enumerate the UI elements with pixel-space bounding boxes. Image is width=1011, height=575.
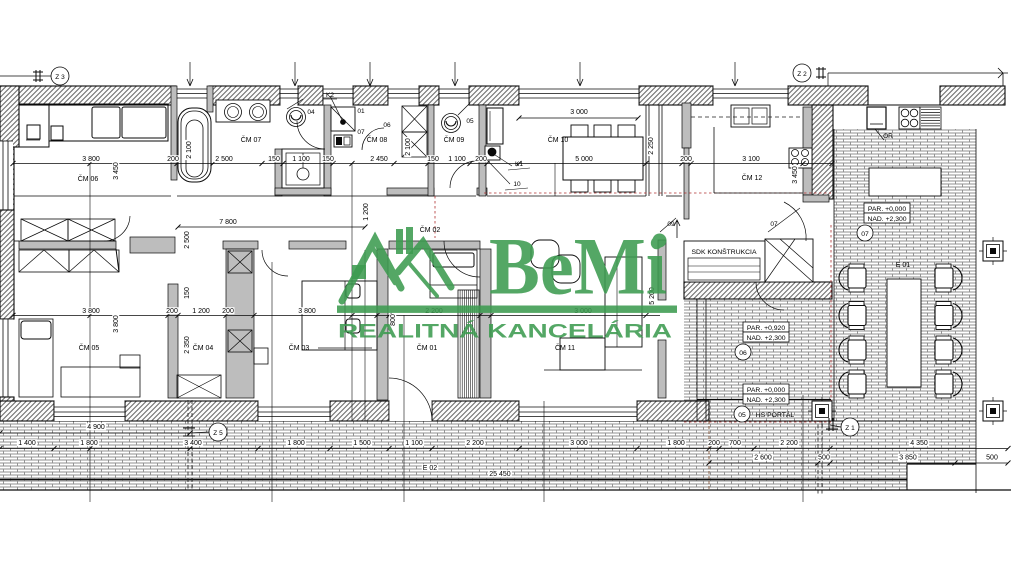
svg-text:ČM 05: ČM 05 (79, 343, 100, 352)
svg-text:500: 500 (986, 455, 998, 462)
svg-text:2 450: 2 450 (370, 156, 388, 163)
svg-text:ČM 06: ČM 06 (78, 174, 99, 183)
svg-text:ČM 01: ČM 01 (417, 343, 438, 352)
svg-text:BeMi: BeMi (489, 221, 667, 312)
svg-text:ČM 08: ČM 08 (367, 135, 388, 144)
svg-text:25 450: 25 450 (489, 471, 511, 478)
svg-text:2 100: 2 100 (405, 138, 412, 156)
svg-text:Z 3: Z 3 (55, 74, 65, 81)
svg-text:Z 1: Z 1 (845, 425, 855, 432)
svg-text:ČM 04: ČM 04 (193, 343, 214, 352)
svg-text:E 02: E 02 (423, 465, 438, 472)
svg-text:07: 07 (357, 129, 365, 136)
svg-text:K2: K2 (326, 92, 334, 99)
svg-text:05: 05 (466, 118, 474, 125)
svg-text:2 600: 2 600 (754, 455, 772, 462)
svg-text:Z 2: Z 2 (797, 71, 807, 78)
svg-text:150: 150 (268, 156, 280, 163)
svg-text:2 350: 2 350 (184, 336, 191, 354)
svg-text:1 500: 1 500 (353, 440, 371, 447)
svg-text:PAR. +0,920: PAR. +0,920 (747, 325, 785, 332)
svg-text:3 850: 3 850 (899, 455, 917, 462)
svg-text:5 000: 5 000 (575, 156, 593, 163)
svg-text:2 200: 2 200 (466, 440, 484, 447)
svg-text:1 100: 1 100 (292, 156, 310, 163)
svg-text:3 800: 3 800 (82, 156, 100, 163)
svg-text:1 800: 1 800 (80, 440, 98, 447)
svg-text:K1: K1 (515, 161, 523, 168)
svg-text:01: 01 (357, 108, 365, 115)
svg-text:3 450: 3 450 (113, 162, 120, 180)
svg-text:2 250: 2 250 (648, 137, 655, 155)
svg-text:200: 200 (680, 156, 692, 163)
svg-text:PAR. +0,000: PAR. +0,000 (868, 206, 906, 213)
svg-text:200: 200 (222, 308, 234, 315)
svg-text:1 800: 1 800 (287, 440, 305, 447)
svg-text:3 100: 3 100 (742, 156, 760, 163)
svg-text:ČM 11: ČM 11 (555, 343, 575, 352)
svg-text:700: 700 (729, 440, 741, 447)
svg-text:E 01: E 01 (896, 262, 911, 269)
svg-text:2 200: 2 200 (780, 440, 798, 447)
svg-text:3 800: 3 800 (113, 315, 120, 333)
svg-text:06: 06 (739, 350, 747, 357)
svg-text:05: 05 (738, 412, 746, 419)
svg-text:ČM 09: ČM 09 (444, 135, 465, 144)
svg-text:ČM 10: ČM 10 (548, 135, 569, 144)
svg-text:2 500: 2 500 (184, 231, 191, 249)
svg-text:500: 500 (818, 455, 830, 462)
svg-text:200: 200 (166, 308, 178, 315)
svg-text:OR: OR (883, 133, 893, 140)
svg-text:3 400: 3 400 (184, 440, 202, 447)
svg-text:NAD. +2,300: NAD. +2,300 (867, 216, 906, 223)
svg-text:4 350: 4 350 (910, 440, 928, 447)
svg-text:ČM 03: ČM 03 (289, 343, 310, 352)
svg-text:SDK KONŠTRUKCIA: SDK KONŠTRUKCIA (692, 247, 757, 256)
svg-text:150: 150 (184, 287, 191, 299)
svg-text:ČM 02: ČM 02 (420, 225, 441, 234)
svg-text:NAD. +2,300: NAD. +2,300 (746, 397, 785, 404)
svg-text:7 800: 7 800 (219, 219, 237, 226)
svg-text:1 100: 1 100 (448, 156, 466, 163)
svg-text:07: 07 (770, 221, 778, 228)
svg-text:2 100: 2 100 (186, 141, 193, 159)
svg-text:06: 06 (383, 122, 391, 129)
svg-text:ČM 07: ČM 07 (241, 135, 262, 144)
svg-text:3 000: 3 000 (570, 109, 588, 116)
svg-text:REALITNÁ KANCELÁRIA: REALITNÁ KANCELÁRIA (338, 320, 672, 343)
svg-text:150: 150 (322, 156, 334, 163)
svg-text:PAR. +0,000: PAR. +0,000 (747, 387, 785, 394)
svg-text:3 000: 3 000 (570, 440, 588, 447)
svg-text:04: 04 (307, 109, 315, 116)
svg-text:150: 150 (427, 156, 439, 163)
svg-text:1 400: 1 400 (18, 440, 36, 447)
svg-text:200: 200 (475, 156, 487, 163)
svg-text:3 450: 3 450 (792, 166, 799, 184)
svg-text:10: 10 (513, 181, 521, 188)
svg-text:1 100: 1 100 (405, 440, 423, 447)
svg-text:NAD. +2,300: NAD. +2,300 (746, 335, 785, 342)
svg-text:Z 5: Z 5 (213, 430, 223, 437)
svg-text:3 800: 3 800 (298, 308, 316, 315)
svg-text:3 800: 3 800 (82, 308, 100, 315)
svg-text:1 200: 1 200 (363, 203, 370, 221)
svg-text:ČM 12: ČM 12 (742, 173, 763, 182)
svg-text:200: 200 (167, 156, 179, 163)
svg-text:1 200: 1 200 (192, 308, 210, 315)
svg-text:4 900: 4 900 (87, 424, 105, 431)
svg-text:200: 200 (708, 440, 720, 447)
svg-text:HS PORTÁL: HS PORTÁL (756, 410, 795, 419)
svg-text:1 800: 1 800 (667, 440, 685, 447)
svg-text:07: 07 (861, 231, 869, 238)
svg-text:2 500: 2 500 (215, 156, 233, 163)
